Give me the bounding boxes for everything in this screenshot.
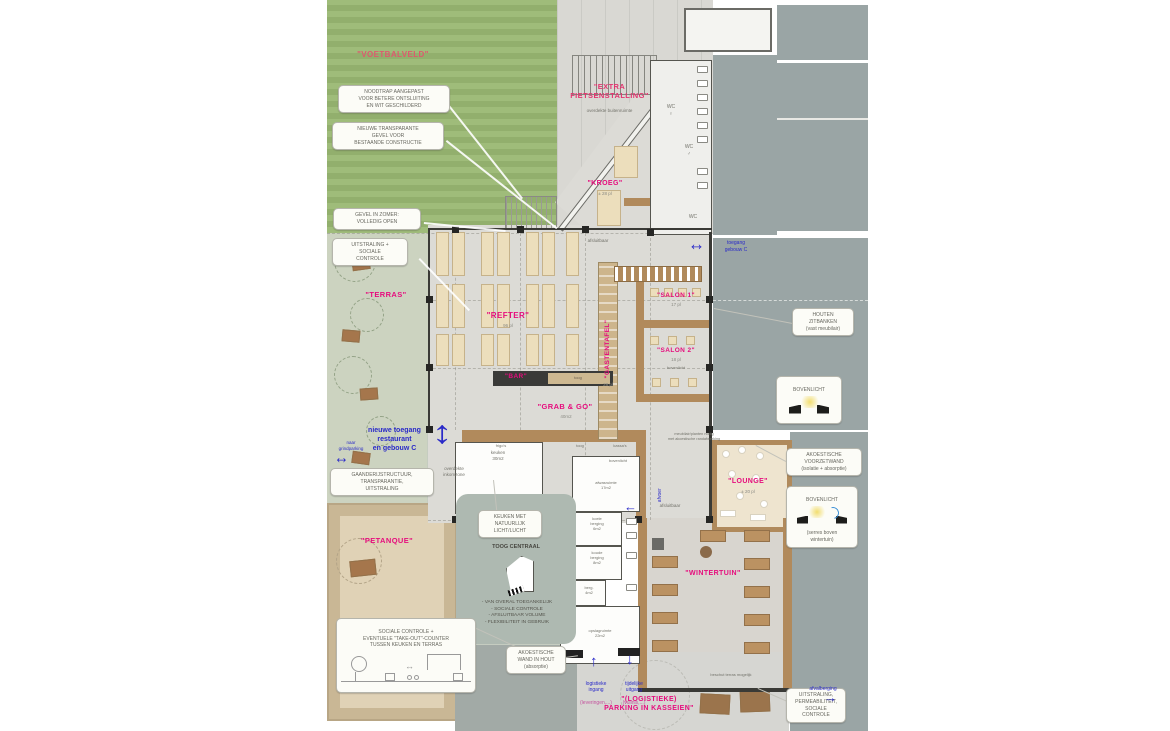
sketch-light (799, 396, 821, 408)
column (426, 296, 433, 303)
toilet-fixture (697, 94, 708, 101)
wintertuin-frame (638, 518, 647, 690)
bar-note: toog (566, 375, 590, 380)
salon-table (686, 336, 695, 345)
callout-gevel: NIEUWE TRANSPARANTE GEVEL VOOR BESTAANDE… (332, 122, 444, 150)
tijdelijke-uitgang-note: tijdelijke uitgang (vuilnis,...) (614, 674, 654, 707)
fietsenstalling-sub: overdekte buitenruimte (572, 108, 647, 114)
sketch-wheel (407, 675, 412, 680)
bovenlicht2-sketch (791, 506, 853, 524)
keuken-note: keuken 30m2 (478, 450, 518, 462)
refter-table (542, 284, 555, 328)
kroeg-cap: ± 28 pl (586, 191, 624, 196)
wall (428, 228, 712, 230)
sketch-trunk (355, 672, 363, 681)
callout-uitstraling: UITSTRALING + SOCIALE CONTROLE (332, 238, 408, 266)
salon-table (670, 378, 679, 387)
toilet-fixture (697, 136, 708, 143)
toilet-fixture (697, 122, 708, 129)
toilet-fixture (697, 182, 708, 189)
toegang-gebouwc-note: toegang gebouw C (714, 240, 758, 253)
beschut-terras-note: beschut terras mogelijk (698, 672, 764, 677)
refter-table (481, 232, 494, 276)
salon-frame (636, 394, 710, 402)
takeout-sketch: ↔ (341, 652, 471, 682)
tijdelijke-uitgang-arrow: ↓ (626, 652, 634, 667)
refter-table (436, 334, 449, 366)
column (706, 296, 713, 303)
petanque-table (349, 559, 377, 578)
callout-uitstraling2: UITSTRALING, PERMEABILITEIT, SOCIALE CON… (786, 688, 846, 723)
wall (709, 232, 712, 522)
lounge-seat (728, 470, 736, 478)
grabgo-cap: 40m2 (552, 414, 580, 419)
sketch-counter (427, 654, 461, 670)
toog-note: toog (568, 443, 592, 448)
existing-building-top (713, 55, 777, 235)
voetbalveld-label: "VOETBALVELD" (348, 50, 438, 60)
callout-keuken-licht: KEUKEN MET NATUURLIJK LICHT/LUCHT (478, 510, 542, 538)
column (452, 226, 459, 233)
logistieke-ingang-note: logistieke ingang (leveringen,...) (576, 674, 616, 707)
gastentafel-cap: 28 pl (594, 382, 622, 387)
lounge-seat (756, 452, 764, 460)
wintertuin-table (652, 640, 678, 652)
parking-bench (740, 689, 771, 712)
callout-noodtrap: NOODTRAP AANGEPAST VOOR BETERE ONTSLUITI… (338, 85, 450, 113)
wc-female-label: WC ♀ (662, 104, 680, 117)
lounge-bench (720, 510, 736, 517)
refter-table (452, 334, 465, 366)
tijdelijke-uitgang-text: tijdelijke uitgang (625, 681, 643, 694)
refter-table (526, 232, 539, 276)
refter-table (481, 334, 494, 366)
inkomzone-note: overdekte inkomzone (432, 466, 476, 478)
wall (638, 688, 792, 692)
refter-table (566, 334, 579, 366)
sink-fixture (626, 552, 637, 559)
sketch-tree (351, 656, 367, 672)
wintertuin-table (652, 584, 678, 596)
salon2-note: bovenlicht (656, 365, 696, 370)
koud-note: koude berging 8m2 (580, 550, 614, 566)
sketch-arrow: ↔ (405, 660, 414, 672)
column (426, 364, 433, 371)
refter-cap: 96 pl (494, 323, 522, 328)
callout-bovenlicht1: BOVENLICHT (776, 376, 842, 424)
bovenlicht2-text: BOVENLICHT (806, 497, 838, 503)
berg-note: berg. 4m2 (574, 585, 604, 595)
petanque-label: "PETANQUE" (352, 536, 422, 545)
salon1-label: "SALON 1" (646, 292, 706, 300)
floor-plan: WC ♀ WC ♂ WC (0, 0, 1170, 731)
building-outline (684, 8, 772, 52)
sketch-wheel (414, 675, 419, 680)
lounge-cap: ± 20 pl (734, 489, 762, 494)
wintertuin-table (652, 556, 678, 568)
refter-table (436, 284, 449, 328)
salon-table (668, 336, 677, 345)
lounge-seat (760, 500, 768, 508)
sketch-box (453, 673, 463, 681)
wintertuin-feature (652, 538, 664, 550)
toilet-fixture (697, 66, 708, 73)
refter-table (497, 284, 510, 328)
wintertuin-label: "WINTERTUIN" (668, 570, 758, 579)
lounge-bench (750, 514, 766, 521)
kroeg-label: "KROEG" (580, 180, 630, 189)
refter-label: "REFTER" (478, 311, 538, 321)
afvalberging-arrow: → (824, 691, 837, 704)
salon2-cap: 18 pl (662, 357, 690, 362)
lounge-seat (738, 446, 746, 454)
wintertuin-table (744, 558, 770, 570)
wintertuin-table (744, 530, 770, 542)
wintertuin-table (744, 586, 770, 598)
bovenlicht-counter-note: bovenlicht (598, 458, 638, 463)
salon-bench (614, 266, 702, 282)
frigos-note: frigo's (488, 443, 514, 448)
wc-label: WC (684, 214, 702, 221)
column (647, 229, 654, 236)
salon-table (688, 378, 697, 387)
opslag-note: opslagruimte 22m2 (570, 628, 630, 638)
wintertuin-table (744, 614, 770, 626)
bovenlicht2-sub: (serres boven wintertuin) (807, 530, 838, 543)
callout-zitbanken: HOUTEN ZITBANKEN (vast meubilair) (792, 308, 854, 336)
wintertuin-table (652, 612, 678, 624)
afwas-note: afwasruimte 17m2 (586, 480, 626, 490)
building-gap (777, 60, 868, 63)
salon-frame (636, 320, 710, 328)
afvoer-note: afvoer (657, 480, 664, 510)
salon2-label: "SALON 2" (646, 347, 706, 355)
refter-table (481, 284, 494, 328)
callout-gaanderij: GAANDERIJSTRUCTUUR, TRANSPARANTIE, UITST… (330, 468, 434, 496)
terras-table (342, 329, 361, 343)
refter-table (497, 232, 510, 276)
toog-centraal-title: TOOG CENTRAAL (474, 544, 558, 550)
sink-fixture (626, 532, 637, 539)
wintertuin-table (744, 642, 770, 654)
refter-table (526, 334, 539, 366)
toog-centraal-list: - VAN OVERAL TOEGANKELIJK - SOCIALE CONT… (462, 600, 572, 627)
column (517, 226, 524, 233)
terras-label: "TERRAS" (356, 290, 416, 299)
akoestiek-note: meubilair/planten nodig met akoestische … (654, 432, 734, 442)
logistieke-ingang-arrow: ↑ (590, 654, 598, 669)
toilet-fixture (697, 80, 708, 87)
refter-table (542, 232, 555, 276)
callout-takeout-text: SOCIALE CONTROLE + EVENTUELE "TAKE-OUT"-… (363, 629, 449, 649)
callout-voorzetwand: AKOESTISCHE VOORZETWAND (isolatie + abso… (786, 448, 862, 476)
bovenlicht1-sketch (781, 396, 837, 414)
callout-takeout: SOCIALE CONTROLE + EVENTUELE "TAKE-OUT"-… (336, 618, 476, 693)
column (706, 364, 713, 371)
sink-fixture (626, 584, 637, 591)
refter-table (566, 284, 579, 328)
toilet-fixture (697, 108, 708, 115)
refter-table (497, 334, 510, 366)
wintertuin-table (700, 530, 726, 542)
callout-bovenlicht2: BOVENLICHT (serres boven wintertuin) (786, 486, 858, 548)
terras-table (360, 387, 379, 400)
refter-table (452, 284, 465, 328)
callout-akoestische-wand: AKOESTISCHE WAND IN HOUT (absorptie) (506, 646, 566, 674)
refter-table (436, 232, 449, 276)
refter-table (526, 284, 539, 328)
logistieke-ingang-sub: (leveringen,...) (580, 700, 612, 706)
kroeg-table (614, 146, 638, 178)
bovenlicht1-text: BOVENLICHT (793, 387, 825, 393)
lounge-seat (722, 450, 730, 458)
wall (428, 228, 430, 433)
salon-table (650, 336, 659, 345)
salon1-cap: 17 pl (662, 302, 690, 307)
sketch-light (807, 506, 827, 518)
afvoer-arrow: ← (624, 500, 637, 513)
sketch-box (385, 673, 395, 681)
logistieke-ingang-text: logistieke ingang (586, 681, 607, 694)
refter-table (542, 334, 555, 366)
lounge-label: "LOUNGE" (716, 478, 780, 487)
nieuwe-toegang-arrow: ↕ (432, 416, 453, 448)
fietsenstalling-label: "EXTRA FIETSENSTALLING" (562, 82, 657, 101)
salon-frame (636, 266, 644, 402)
wc-male-label: WC ♂ (680, 144, 698, 157)
tree-symbol (350, 298, 384, 332)
afsluitbaar-note-2: afsluitbaar (648, 503, 692, 509)
bar-label: "BAR" (498, 373, 534, 381)
grindparking-arrow: ↔ (334, 449, 349, 467)
koel-note: koele berging 6m2 (580, 516, 614, 532)
refter-table (452, 232, 465, 276)
afsluitbaar-note-1: afsluitbaar (576, 238, 620, 244)
gastentafel-label: "GASTENTAFEL" (604, 289, 612, 409)
building-gap (713, 300, 868, 302)
sink-fixture (626, 518, 637, 525)
building-gap (777, 118, 868, 120)
column (582, 226, 589, 233)
toegang-gebouwc-arrow: ↔ (688, 234, 705, 254)
kassas-note: kassa's (606, 443, 634, 448)
salon-table (652, 378, 661, 387)
wintertuin-plant (700, 546, 712, 558)
afvalberging-note: afvalberging (798, 686, 848, 693)
callout-zomer: GEVEL IN ZOMER: VOLLEDIG OPEN (333, 208, 421, 230)
column (706, 516, 713, 523)
toilet-fixture (697, 168, 708, 175)
grabgo-label: "GRAB & GO" (520, 402, 610, 411)
noodtrap-stairs (505, 196, 557, 230)
tijdelijke-uitgang-sub: (vuilnis,...) (623, 700, 646, 706)
